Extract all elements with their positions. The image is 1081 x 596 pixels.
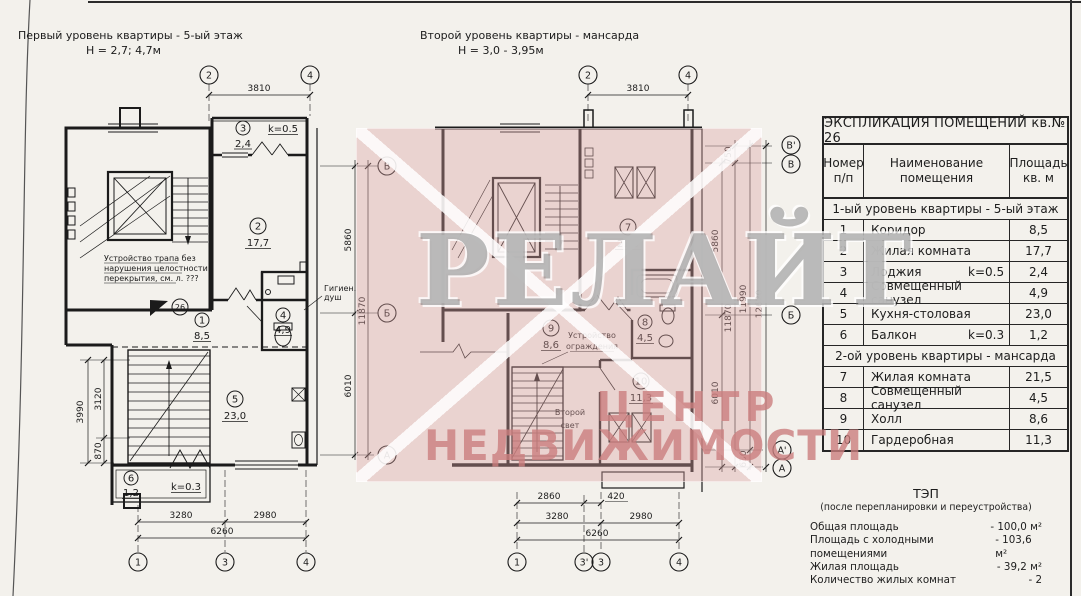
room-area: 11,3 [630,393,652,404]
table-header-text: Наименование [890,156,983,171]
grid-axis: 2 [206,71,212,82]
table-cell: 5 [824,304,864,324]
note-trap-line2: нарушения целостности [104,264,208,273]
table-header-text: Номер [823,156,863,171]
table-cell: 7 [824,367,864,387]
left-plan: Первый уровень квартиры - 5-ый этаж Н = … [18,29,396,571]
grid-axis: В [384,162,391,173]
tep-label: Общая площадь [810,521,899,534]
table-row: 2 Жилая комната 17,7 [824,241,1067,262]
note-shower-line2: душ [324,293,342,302]
dim-top: 3810 [627,84,650,94]
tep-value: - 39,2 м² [997,561,1042,574]
grid-axis: 3 [598,558,604,569]
table-cell: 2,4 [1010,262,1067,282]
table-cell: Гардеробная [864,430,1010,450]
table-cell: 9 [824,409,864,429]
dim-bottom-2: 2980 [254,511,277,521]
table-cell: Совмещенный санузел [864,283,1010,303]
grid-axis: 3 [222,558,228,569]
tep-label: Площадь с холодными помещениями [810,534,995,561]
room-name: Кухня-столовая [871,307,971,321]
table-cell: 3 [824,262,864,282]
room-number: 5 [232,395,238,406]
fixtures-level1 [266,276,306,448]
dim-bottom-total: 6260 [211,527,234,537]
note-fence-line1: Устройство [568,331,616,340]
note-fence-line2: ограждения [566,342,618,351]
room-coef: k=0.5 [268,124,298,135]
table-cell: 2 [824,241,864,261]
grid-axis: 1 [135,558,141,569]
table-cell: 17,7 [1010,241,1067,261]
dim-right-total: 11870 [358,296,368,325]
grid-axis: А' [777,446,786,457]
grid-axis: 1 [514,558,520,569]
room-coef: k=0.3 [171,482,201,493]
table-cell: 1,2 [1010,325,1067,345]
grid-axis: 3' [580,558,589,569]
room-coef: k=0.5 [968,265,1004,279]
table-cell: Кухня-столовая [864,304,1010,324]
grid-axis: Б [384,309,391,320]
dim-right-630: 630 [739,450,749,467]
room-number: 6 [128,474,134,485]
table-row: 9 Холл 8,6 [824,409,1067,430]
right-plan: Второй уровень квартиры - мансарда Н = 3… [420,29,800,571]
table-cell: 11,3 [1010,430,1067,450]
table-cell: 10 [824,430,864,450]
table-cell: Балконk=0.3 [864,325,1010,345]
dim-right-6010: 6010 [711,381,721,404]
dimensions-level1: 3810 3990 3120 870 5860 6010 11870 3280 … [76,84,378,552]
note-second-light-line2: свет [561,421,580,430]
table-section-level2: 2-ой уровень квартиры - мансарда [824,346,1067,367]
table-row: 4 Совмещенный санузел 4,9 [824,283,1067,304]
table-cell: 4 [824,283,864,303]
table-cell: 8,6 [1010,409,1067,429]
right-plan-height-note: Н = 3,0 - 3,95м [458,44,544,57]
table-cell: Холл [864,409,1010,429]
grid-axis: Б [788,311,795,322]
tep-items: Общая площадь - 100,0 м² Площадь с холод… [810,521,1042,587]
scan-edge-left [13,0,30,596]
table-row: 10 Гардеробная 11,3 [824,430,1067,450]
tep-value: - 100,0 м² [990,521,1042,534]
dim-right-11870: 11870 [724,303,734,332]
table-cell: Совмещенный санузел [864,388,1010,408]
grid-axis: 2 [585,71,591,82]
room-name: Совмещенный санузел [871,384,1009,412]
dim-top: 3810 [248,84,271,94]
room-area: 8,5 [194,331,210,342]
room-number: 3 [240,124,246,135]
room-number: 9 [548,324,554,335]
table-title: ЭКСПЛИКАЦИЯ ПОМЕЩЕНИЙ кв.№ 26 [824,118,1067,145]
annotations-level1: 26 Устройство трапа без нарушения целост… [104,254,356,315]
table-header-text: Площадь [1009,156,1067,171]
tep-label: Жилая площадь [810,561,899,574]
tep-value: - 103,6 м² [995,534,1042,561]
grid-axis: В [788,160,795,171]
table-cell: 4,5 [1010,388,1067,408]
dim-bottom-total: 6260 [586,529,609,539]
dim-right-5860: 5860 [711,229,721,252]
note-second-light-line1: Второй [555,408,585,417]
room-area: 4,9 [275,325,291,336]
table-cell: 8,5 [1010,220,1067,240]
room-number: 4 [280,311,286,322]
dim-bottom-2980: 2980 [630,512,653,522]
dim-bottom-1: 3280 [170,511,193,521]
tep-title: ТЭП [810,487,1042,501]
room-name: Лоджия [871,265,922,279]
table-row: 1 Коридор 8,5 [824,220,1067,241]
table-col-name: Наименование помещения [864,145,1010,197]
room-area: 17,7 [247,238,269,249]
tep-item: Площадь с холодными помещениями - 103,6 … [810,534,1042,561]
room-name: Коридор [871,223,926,237]
table-section-level1: 1-ый уровень квартиры - 5-ый этаж [824,199,1067,220]
note-trap-line1: Устройство трапа без [104,254,196,263]
scanned-floor-plan-sheet: Первый уровень квартиры - 5-ый этаж Н = … [0,0,1081,596]
tep-label: Количество жилых комнат [810,574,956,587]
grid-axis: В' [786,141,795,152]
table-cell: 8 [824,388,864,408]
dim-right-750: 750 [724,146,734,163]
grid-axis: 4 [303,558,309,569]
dim-right-5860: 5860 [344,228,354,251]
table-col-number: Номер п/п [824,145,864,197]
table-header-text: помещения [900,171,973,186]
dim-bottom-2860: 2860 [538,492,561,502]
room-number: 10 [635,377,648,388]
table-cell: 1 [824,220,864,240]
table-header-text: кв. м [1023,171,1054,186]
table-cell: 6 [824,325,864,345]
dim-left-outer: 3990 [76,400,86,423]
room-number: 2 [255,222,261,233]
table-cell: 23,0 [1010,304,1067,324]
table-cell: 21,5 [1010,367,1067,387]
table-cell: 4,9 [1010,283,1067,303]
room-area: 21,5 [617,239,639,250]
stairwell-level2 [443,124,580,310]
tep-item: Количество жилых комнат - 2 [810,574,1042,587]
room-number: 7 [625,223,631,234]
left-plan-height-note: Н = 2,7; 4,7м [86,44,161,57]
room-name: Жилая комната [871,370,971,384]
table-cell: Жилая комната [864,241,1010,261]
dim-left-2: 870 [94,442,104,459]
grid-axis: А [779,464,786,475]
table-header-text: п/п [834,171,854,186]
sheet-frame-right [1070,0,1072,596]
room-name: Гардеробная [871,433,954,447]
grid-axis: 4 [307,71,313,82]
balcony-level1 [112,450,210,508]
left-plan-title: Первый уровень квартиры - 5-ый этаж [18,29,243,42]
note-trap-line3: перекрытия, см. л. ??? [104,274,199,283]
dim-right-12620: 12620 [755,289,765,318]
tep-subtitle: (после перепланировки и переустройства) [810,501,1042,514]
table-row: 6 Балконk=0.3 1,2 [824,325,1067,346]
room-name: Жилая комната [871,244,971,258]
inner-stair-level1 [128,350,210,463]
table-col-area: Площадь кв. м [1010,145,1067,197]
grid-axis: А [384,451,391,462]
tep-value: - 2 [1028,574,1042,587]
room-area: 23,0 [224,411,246,422]
dim-bottom-420: 420 [607,492,624,502]
right-plan-title: Второй уровень квартиры - мансарда [420,29,639,42]
room-area: 2,4 [235,139,251,150]
tep-item: Жилая площадь - 39,2 м² [810,561,1042,574]
dim-right-6010: 6010 [344,374,354,397]
walls-level2 [420,110,702,492]
room-number: 1 [199,316,205,327]
sheet-frame-top [88,1,1081,3]
room-number: 8 [642,318,648,329]
apartment-door-number: 26 [175,303,185,312]
room-name: Балкон [871,328,917,342]
tep-summary: ТЭП (после перепланировки и переустройст… [810,487,1042,587]
note-shower-line1: Гигиен. [324,284,356,293]
room-area: 4,5 [637,333,653,344]
room-name: Холл [871,412,902,426]
table-row: 5 Кухня-столовая 23,0 [824,304,1067,325]
table-cell: Коридор [864,220,1010,240]
grid-axis: 4 [685,71,691,82]
dim-right-11990: 11990 [739,284,749,313]
dim-left-1: 3120 [94,387,104,410]
room-area: 8,6 [543,340,559,351]
room-area: 1,2 [123,488,139,499]
explication-table: ЭКСПЛИКАЦИЯ ПОМЕЩЕНИЙ кв.№ 26 Номер п/п … [822,116,1069,452]
table-row: 8 Совмещенный санузел 4,5 [824,388,1067,409]
tep-item: Общая площадь - 100,0 м² [810,521,1042,534]
room-name: Совмещенный санузел [871,279,1009,307]
dim-bottom-3280: 3280 [546,512,569,522]
grid-axis: 4 [676,558,682,569]
table-header-row: Номер п/п Наименование помещения Площадь… [824,145,1067,199]
room-coef: k=0.3 [968,328,1004,342]
